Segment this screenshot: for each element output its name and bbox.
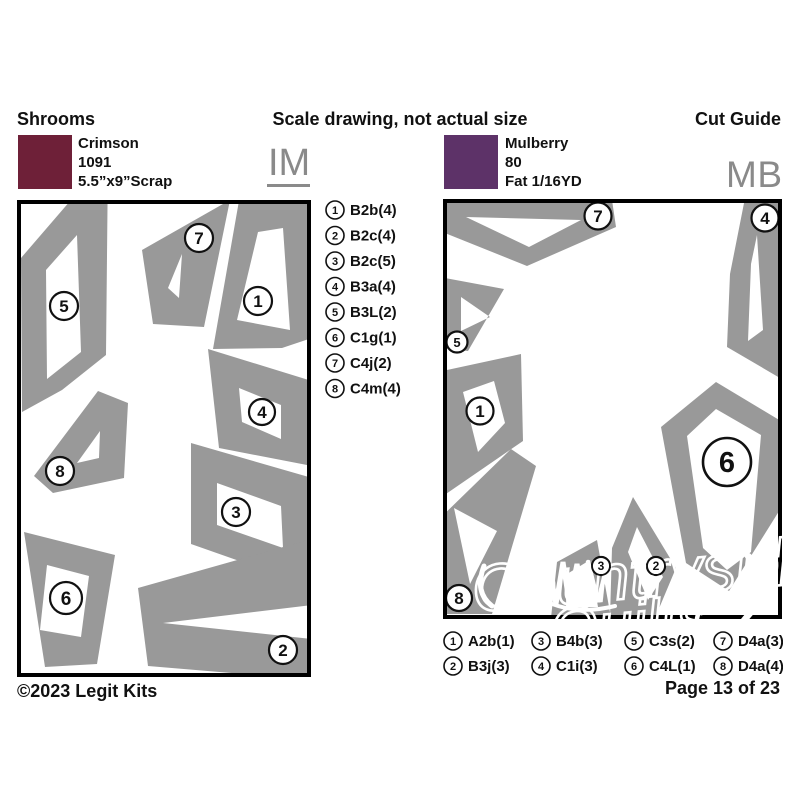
- svg-text:3: 3: [598, 559, 605, 573]
- svg-text:5: 5: [631, 636, 637, 648]
- svg-text:A2b(1): A2b(1): [468, 633, 515, 650]
- svg-text:8: 8: [720, 661, 726, 673]
- svg-text:C4L(1): C4L(1): [649, 658, 696, 675]
- svg-text:2: 2: [653, 559, 660, 573]
- svg-text:B3j(3): B3j(3): [468, 658, 510, 675]
- svg-text:B4b(3): B4b(3): [556, 633, 603, 650]
- svg-text:D4a(4): D4a(4): [738, 658, 783, 675]
- svg-text:C1i(3): C1i(3): [556, 658, 598, 675]
- svg-text:6: 6: [631, 661, 637, 673]
- svg-text:4: 4: [538, 661, 545, 673]
- svg-text:2: 2: [450, 661, 456, 673]
- svg-text:1: 1: [450, 636, 456, 648]
- svg-text:3: 3: [538, 636, 544, 648]
- svg-text:C3s(2): C3s(2): [649, 633, 695, 650]
- svg-text:7: 7: [720, 636, 726, 648]
- svg-text:D4a(3): D4a(3): [738, 633, 783, 650]
